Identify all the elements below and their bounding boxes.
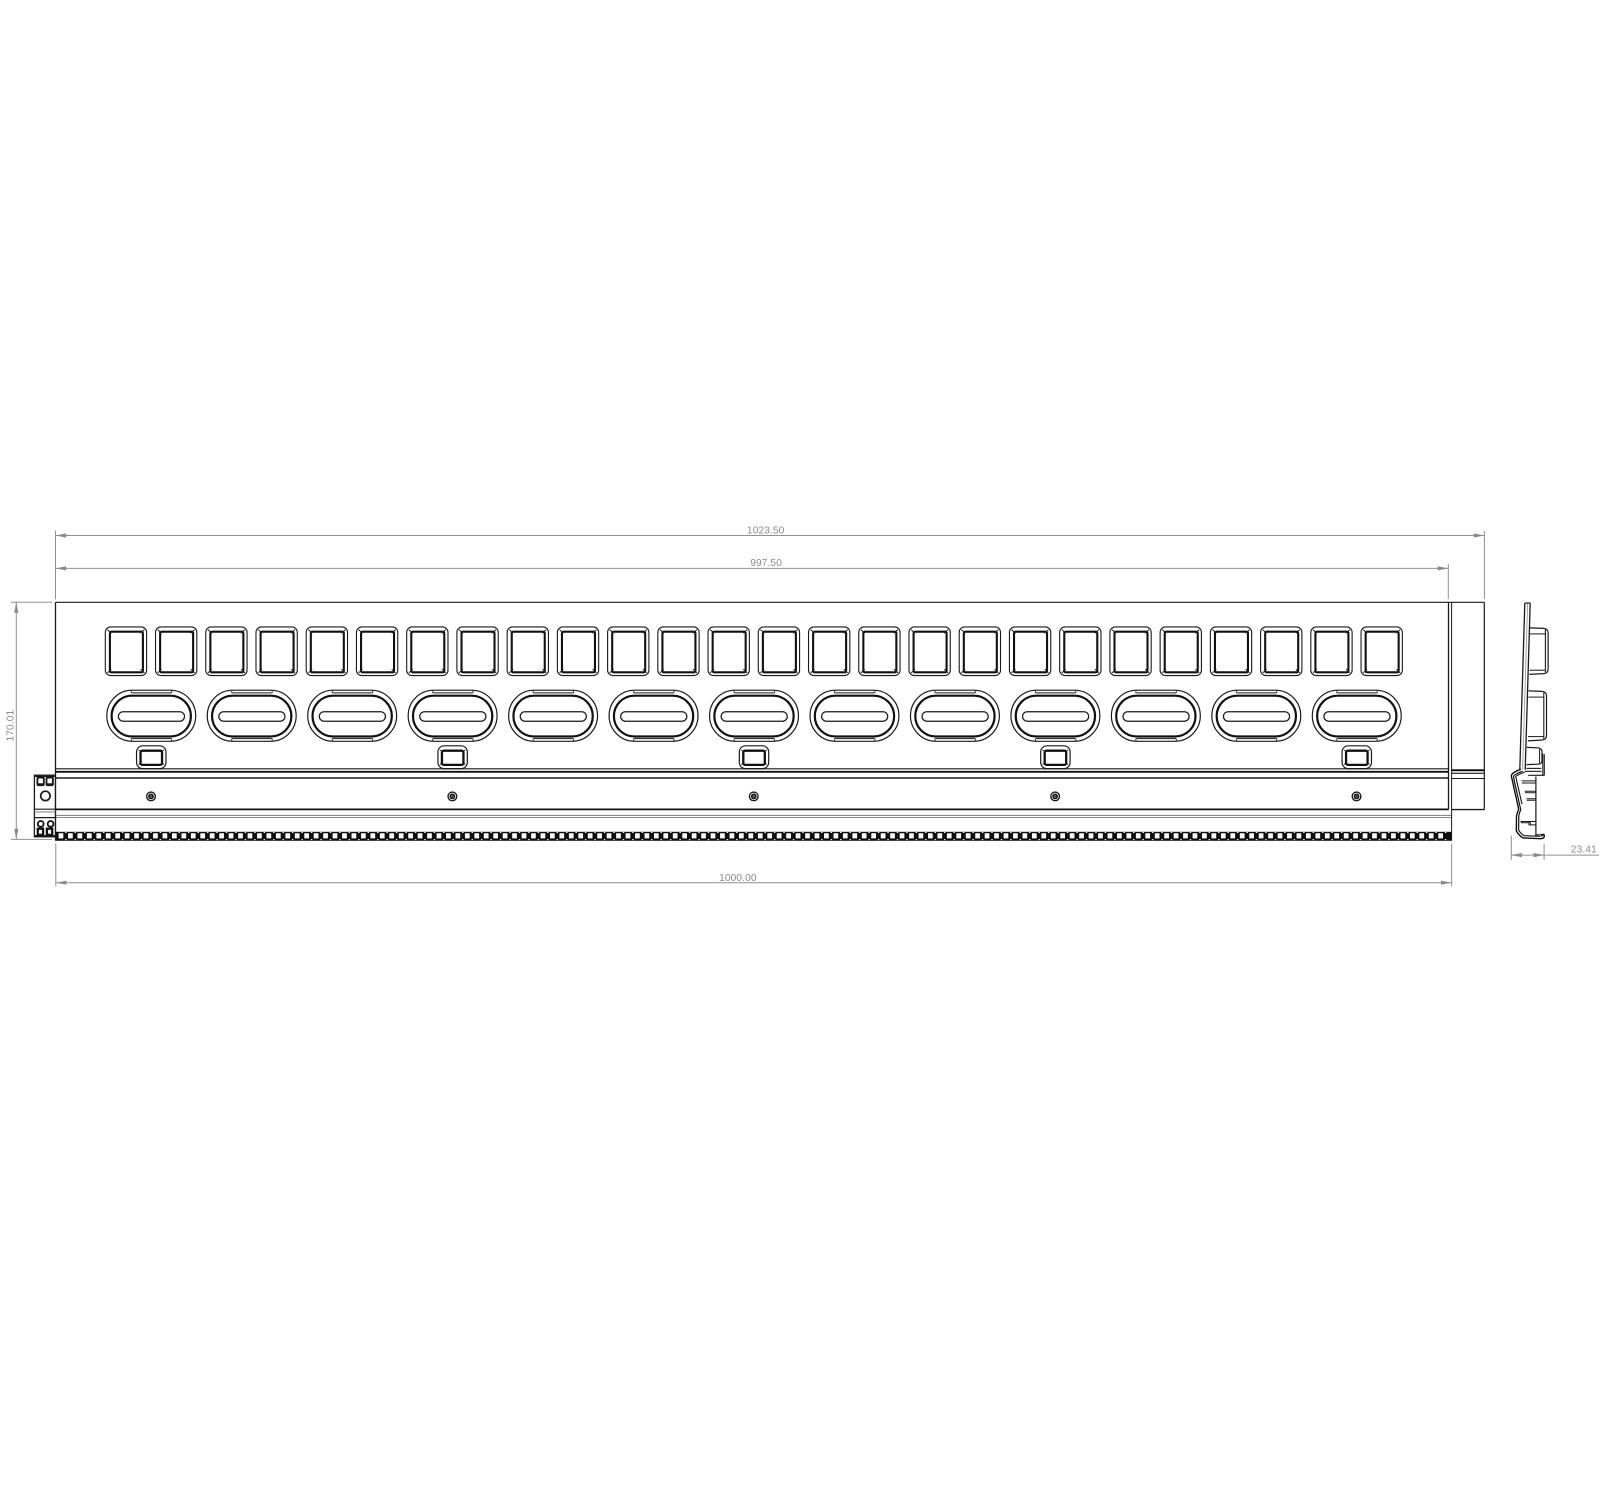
svg-text:997.50: 997.50 xyxy=(750,558,782,569)
svg-text:1023.50: 1023.50 xyxy=(747,526,785,537)
svg-text:170.01: 170.01 xyxy=(6,709,17,741)
svg-text:23.41: 23.41 xyxy=(1571,844,1597,855)
svg-text:1000.00: 1000.00 xyxy=(719,873,757,884)
